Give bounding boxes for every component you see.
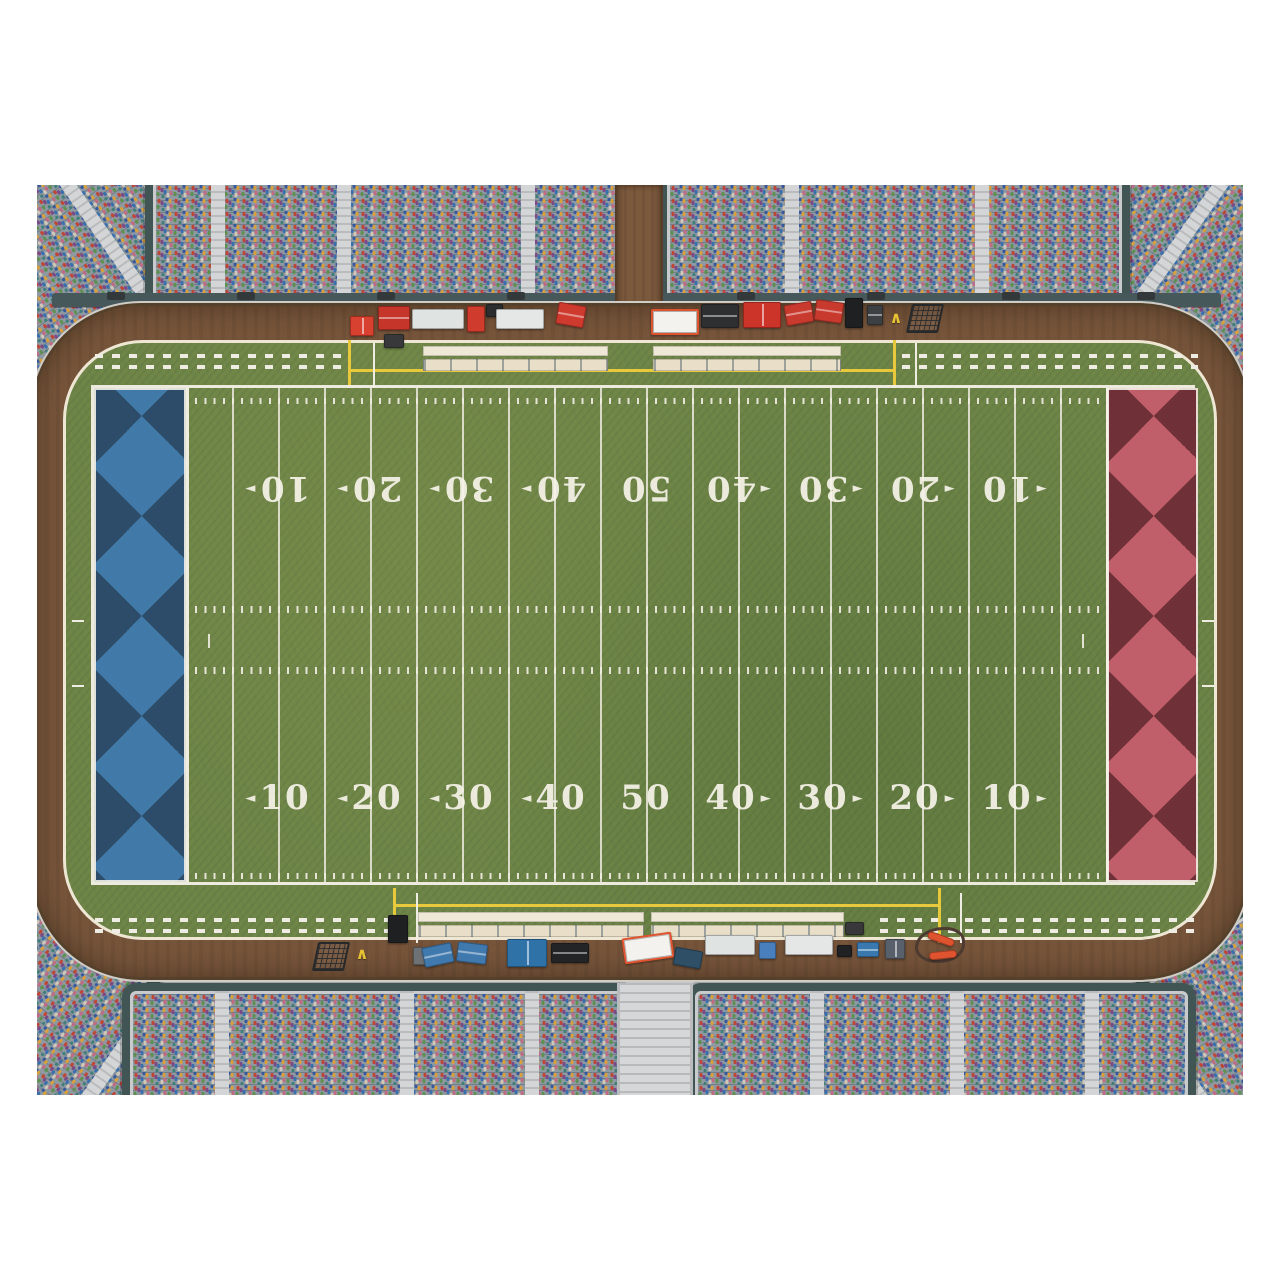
red-trunk xyxy=(814,299,845,324)
yard-number: 40 xyxy=(535,471,586,505)
stair-aisle xyxy=(400,991,414,1095)
crowd-texture xyxy=(133,994,622,1095)
yard-number: 20 xyxy=(889,471,940,505)
grill xyxy=(384,334,404,348)
team-area-yellow-line xyxy=(348,340,351,388)
stair-aisle xyxy=(810,991,824,1095)
hand-truck xyxy=(867,305,883,325)
stadium-art: ◄10◄20◄30◄405040►30►20►10►◄10◄20◄30◄4050… xyxy=(37,185,1243,1095)
kicking-net xyxy=(906,304,944,333)
equipment-boat xyxy=(551,943,589,963)
wall-gate xyxy=(107,292,125,300)
beverage-table xyxy=(705,935,755,955)
yard-number: 30 xyxy=(443,781,494,815)
apron-white-line xyxy=(72,620,84,622)
yard-number-cell: ◄40 xyxy=(509,466,599,510)
chevron-marker: ∧ xyxy=(887,311,905,323)
yard-number-cell: ◄30 xyxy=(417,776,507,820)
vending-machine xyxy=(467,306,485,332)
yard-number: 20 xyxy=(351,471,402,505)
team-area-yellow-line xyxy=(893,340,896,388)
yard-numbers-top: ◄10◄20◄30◄405040►30►20►10► xyxy=(94,466,1192,510)
yard-number: 30 xyxy=(443,471,494,505)
ball-cart xyxy=(388,915,408,943)
blue-trunk xyxy=(456,941,488,965)
beverage-table xyxy=(785,935,833,955)
crowd-texture xyxy=(698,994,1185,1095)
apron-dash-line xyxy=(95,354,348,358)
yard-number-cell: 50 xyxy=(601,776,691,820)
direction-arrow: ► xyxy=(761,792,771,805)
equipment-case xyxy=(837,945,852,957)
stair-aisle xyxy=(211,185,225,307)
wall-gate xyxy=(737,292,755,300)
apron-dash-line xyxy=(95,365,348,369)
direction-arrow: ► xyxy=(853,482,863,495)
direction-arrow: ◄ xyxy=(337,792,347,805)
yard-mark xyxy=(1082,634,1084,648)
apron-white-line xyxy=(1202,620,1214,622)
yard-number: 50 xyxy=(620,781,671,815)
yard-number-cell: ◄20 xyxy=(325,466,415,510)
stair-aisle xyxy=(337,185,351,307)
apron-white-line xyxy=(373,343,375,388)
canopy-table xyxy=(701,304,739,328)
apron-dash-line xyxy=(95,929,391,933)
kicking-net xyxy=(312,942,350,971)
bench-seat xyxy=(423,359,608,371)
yard-number-cell: 10► xyxy=(969,776,1059,820)
yard-number-cell: ◄30 xyxy=(417,466,507,510)
yard-number-cell: 40► xyxy=(693,776,783,820)
stair-aisle xyxy=(215,991,229,1095)
yard-number: 20 xyxy=(889,781,940,815)
hash-mark-row xyxy=(186,606,1106,613)
bench-seat xyxy=(653,359,841,371)
direction-arrow: ► xyxy=(761,482,771,495)
bench-seat xyxy=(418,925,644,937)
crowd-texture xyxy=(156,185,622,304)
stand-bottom-left xyxy=(122,983,633,1095)
double-cart-red xyxy=(743,302,781,328)
stadium-scene: ◄10◄20◄30◄405040►30►20►10►◄10◄20◄30◄4050… xyxy=(0,0,1280,1280)
apron-dash-line xyxy=(902,354,1198,358)
red-cabinet-cart xyxy=(378,306,410,330)
yard-number: 40 xyxy=(535,781,586,815)
yard-number: 30 xyxy=(797,471,848,505)
direction-arrow: ◄ xyxy=(521,792,531,805)
yard-number-cell: ◄20 xyxy=(325,776,415,820)
team-area-yellow-line xyxy=(393,904,941,907)
team-bench xyxy=(418,912,644,938)
football-field: ◄10◄20◄30◄405040►30►20►10►◄10◄20◄30◄4050… xyxy=(91,385,1195,885)
direction-arrow: ► xyxy=(945,792,955,805)
crowd-texture xyxy=(670,185,1119,304)
yard-number: 10 xyxy=(981,781,1032,815)
apron-white-line xyxy=(915,343,917,388)
stretcher xyxy=(651,309,699,335)
ball-cart xyxy=(845,298,863,328)
direction-arrow: ◄ xyxy=(521,482,531,495)
direction-arrow: ◄ xyxy=(337,482,347,495)
center-staircase xyxy=(617,983,693,1095)
direction-arrow: ◄ xyxy=(429,482,439,495)
wall-gate xyxy=(867,292,885,300)
yard-number-cell: ◄10 xyxy=(233,776,323,820)
yard-number-cell: 20► xyxy=(877,776,967,820)
red-trunk xyxy=(555,302,586,329)
wall-gate xyxy=(1137,292,1155,300)
wall-gate xyxy=(507,292,525,300)
stair-aisle xyxy=(785,185,799,307)
stair-aisle xyxy=(975,185,989,307)
apron-dash-line xyxy=(880,918,1198,922)
team-bench xyxy=(423,346,608,372)
yard-number: 20 xyxy=(351,781,402,815)
double-cooler xyxy=(507,939,547,967)
beverage-table xyxy=(412,309,464,329)
apron-white-line xyxy=(1202,685,1214,687)
bench-backrest xyxy=(418,912,644,922)
direction-arrow: ◄ xyxy=(245,792,255,805)
bench-backrest xyxy=(653,346,841,356)
yard-number: 30 xyxy=(797,781,848,815)
stair-aisle xyxy=(525,991,539,1095)
direction-arrow: ► xyxy=(853,792,863,805)
yard-mark xyxy=(208,634,210,648)
yard-number-cell: 10► xyxy=(969,466,1059,510)
yard-number-cell: 40► xyxy=(693,466,783,510)
bench-backrest xyxy=(651,912,844,922)
yard-number: 40 xyxy=(705,781,756,815)
hash-mark-row xyxy=(186,398,1106,404)
hash-mark-row xyxy=(186,873,1106,879)
medical-kit xyxy=(885,939,905,959)
apron-dash-line xyxy=(95,918,391,922)
cooler xyxy=(857,942,879,957)
yard-number-cell: 30► xyxy=(785,776,875,820)
apron-dash-line xyxy=(902,365,1198,369)
bench-backrest xyxy=(423,346,608,356)
direction-arrow: ◄ xyxy=(429,792,439,805)
stair-aisle xyxy=(1085,991,1099,1095)
stair-aisle xyxy=(521,185,535,307)
chevron-marker: ∧ xyxy=(353,947,371,959)
blue-crate xyxy=(759,942,776,959)
yard-number: 10 xyxy=(981,471,1032,505)
yard-number-cell: 50 xyxy=(601,466,691,510)
wall-gate xyxy=(377,292,395,300)
direction-arrow: ► xyxy=(1037,792,1047,805)
team-bench xyxy=(653,346,841,372)
yard-number: 10 xyxy=(259,781,310,815)
hash-mark-row xyxy=(186,667,1106,674)
yard-numbers-bottom: ◄10◄20◄30◄405040►30►20►10► xyxy=(94,776,1192,820)
grill xyxy=(845,922,864,935)
beverage-table xyxy=(496,309,544,329)
yard-number-cell: ◄40 xyxy=(509,776,599,820)
yard-number-cell: 20► xyxy=(877,466,967,510)
apron-white-line xyxy=(72,685,84,687)
infield-grass: ◄10◄20◄30◄405040►30►20►10►◄10◄20◄30◄4050… xyxy=(63,340,1217,940)
stand-bottom-right xyxy=(687,983,1196,1095)
stair-aisle xyxy=(950,991,964,1095)
wall-gate xyxy=(237,292,255,300)
yard-number: 40 xyxy=(705,471,756,505)
direction-arrow: ► xyxy=(1037,482,1047,495)
yard-number-cell: ◄10 xyxy=(233,466,323,510)
yard-number: 10 xyxy=(259,471,310,505)
direction-arrow: ◄ xyxy=(245,482,255,495)
yard-number-cell: 30► xyxy=(785,466,875,510)
wall-gate xyxy=(1002,292,1020,300)
yard-number: 50 xyxy=(620,471,671,505)
first-aid-cart xyxy=(350,316,374,336)
direction-arrow: ► xyxy=(945,482,955,495)
